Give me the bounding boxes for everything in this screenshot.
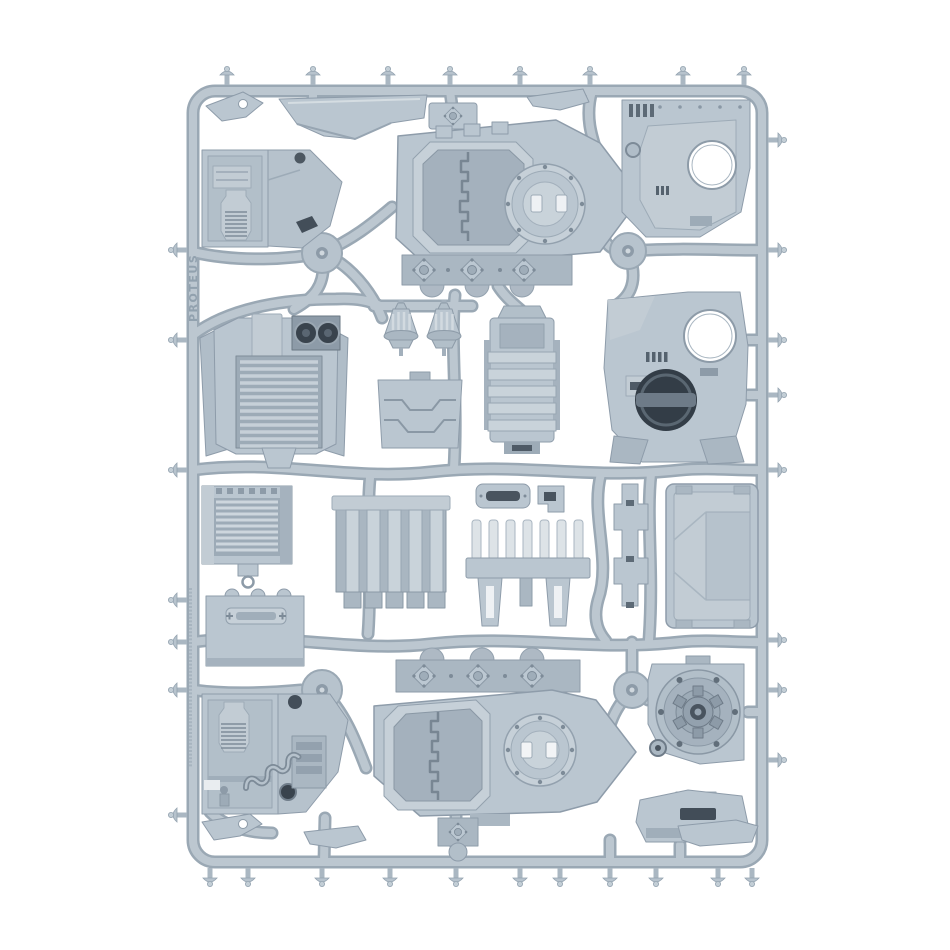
side-door-panel-lower: side-door-panel-lower (604, 292, 748, 464)
roof-panel: roof-panel (666, 484, 758, 628)
sprue-embossed-label: PROTEUS (187, 254, 200, 322)
sprue-photo: PROTEUS sensor-fin glacis-plate top-wedg… (0, 0, 950, 950)
interior-wall-upper: interior-wall-upper (202, 150, 342, 248)
engine-front-plate: engine-front-plate (200, 314, 348, 468)
radiator-block: radiator-block (484, 306, 560, 454)
hub-hatch: hub-hatch (648, 656, 744, 764)
exhaust-manifold-panel: exhaust-manifold-panel (332, 496, 450, 608)
hatch-door: hatch-door (206, 589, 304, 666)
side-door-panel-upper: side-door-panel-upper (622, 100, 750, 237)
vision-slit-plate: vision-slit-plate (476, 484, 530, 508)
access-hatch-plate: access-hatch-plate (378, 372, 462, 448)
